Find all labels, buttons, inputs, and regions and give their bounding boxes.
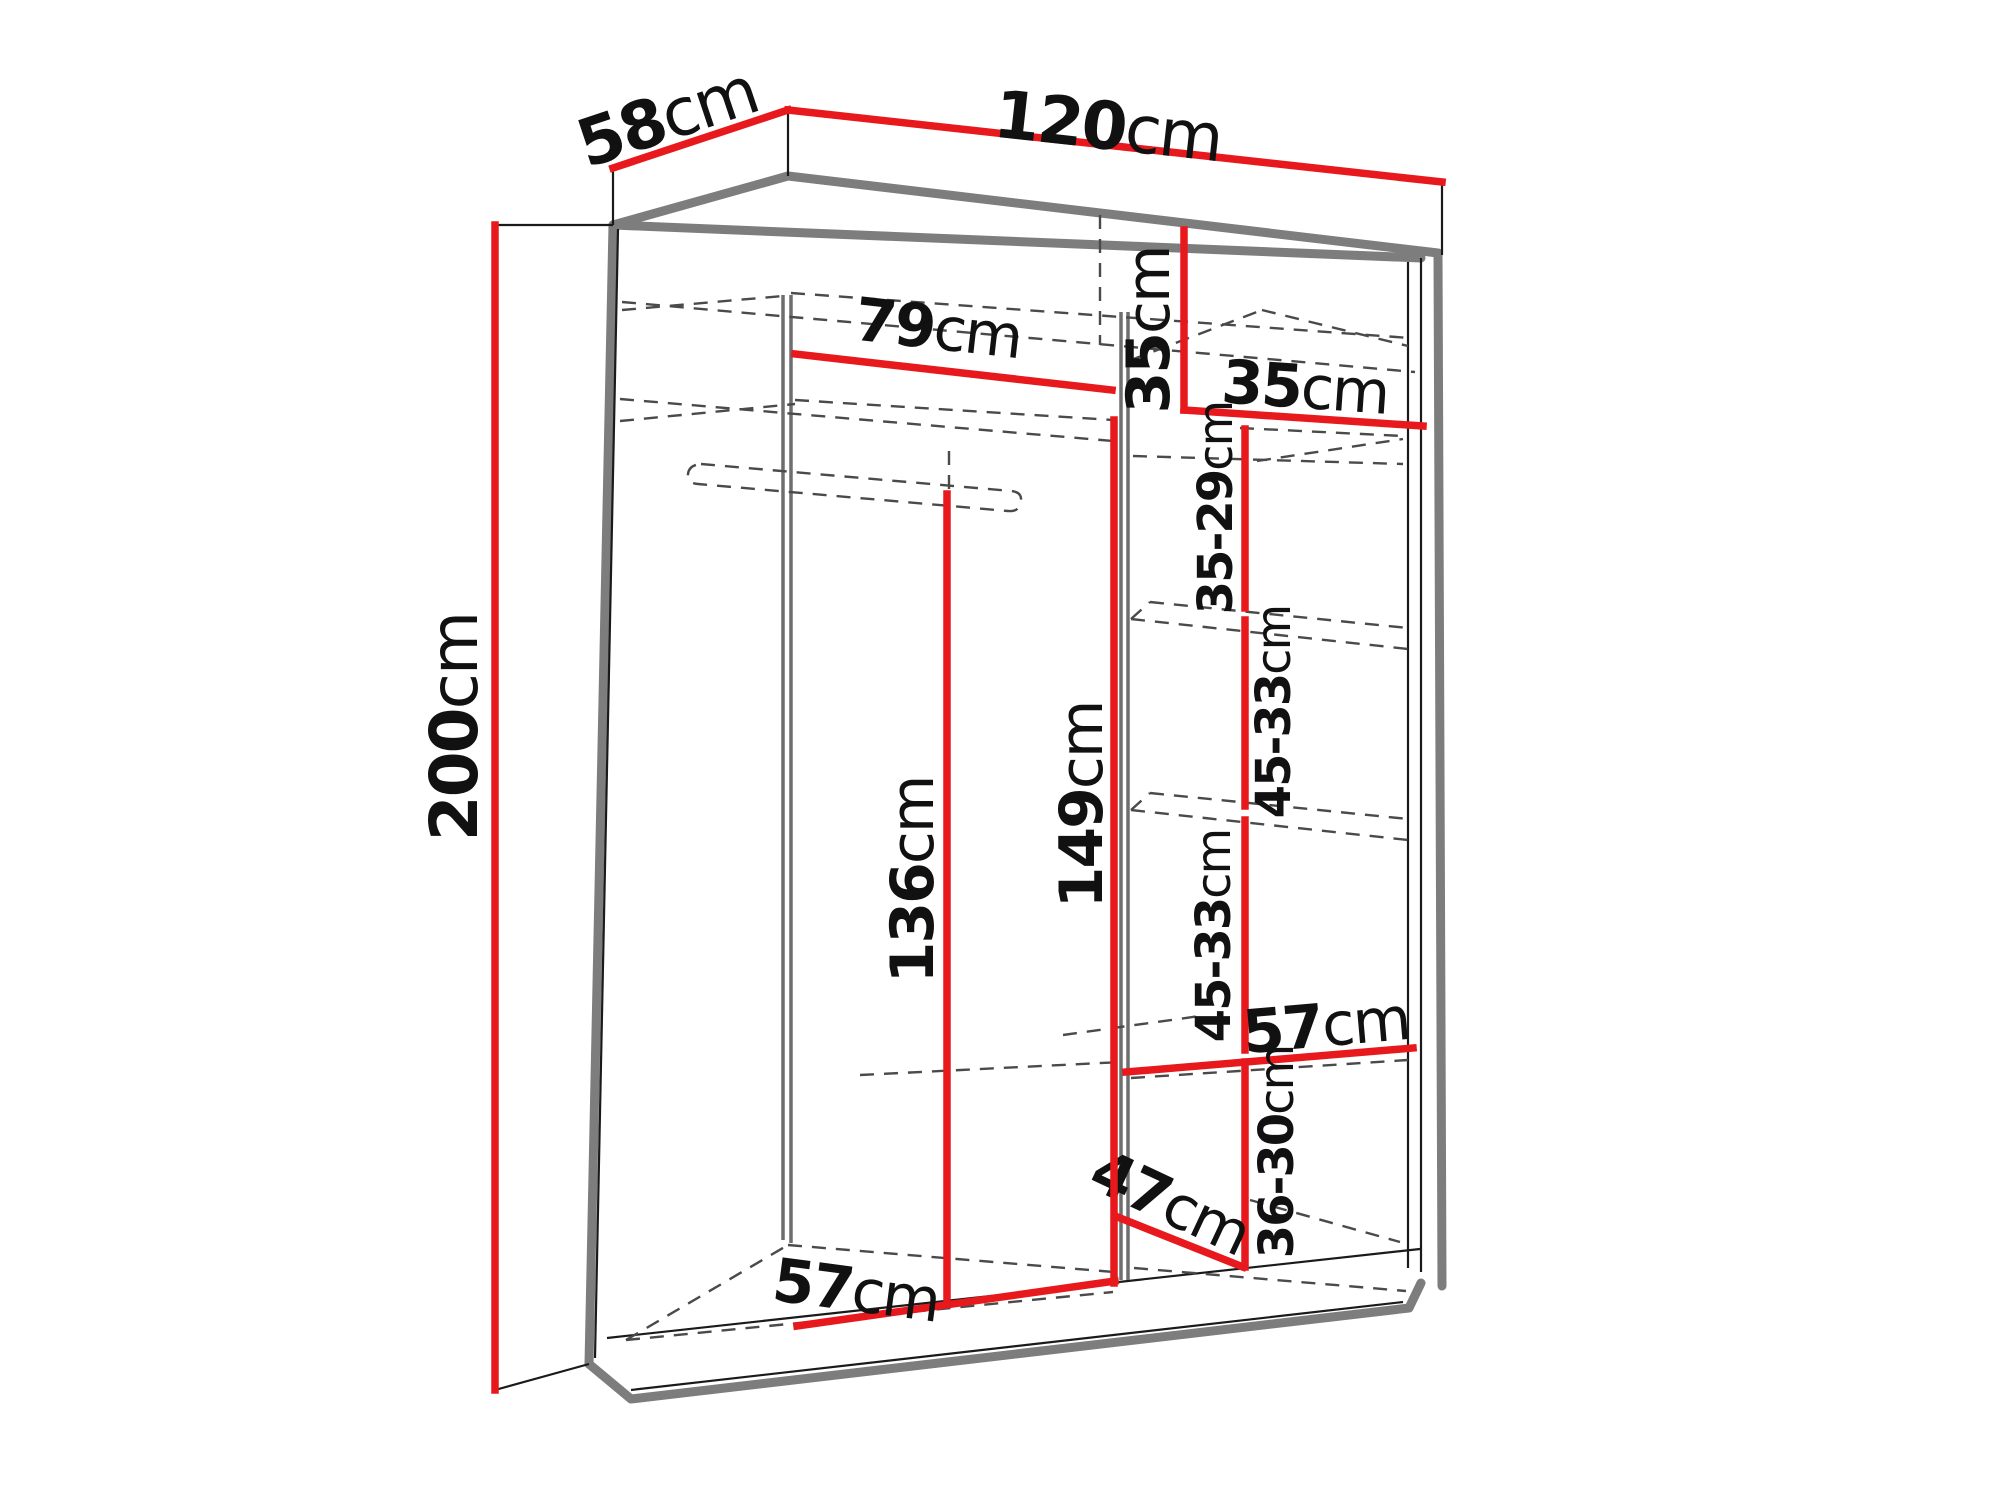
dimension-label-depth-top: 58cm — [567, 51, 766, 183]
dimension-label-top-section-height: 35cm — [1114, 247, 1184, 414]
dimension-label-shelf-gap-3: 45-33cm — [1186, 830, 1242, 1043]
connector-line-1 — [495, 1364, 589, 1390]
dimension-label-shelf-gap-4: 36-30cm — [1249, 1046, 1305, 1259]
wardrobe-dimension-diagram: 58cm120cm200cm79cm35cm35cm35-29cm45-33cm… — [0, 0, 2000, 1500]
dimension-label-bottom-depth: 47cm — [1080, 1136, 1261, 1270]
dimension-label-top-shelf-width: 35cm — [1219, 347, 1390, 428]
dimension-label-hanging-height: 136cm — [878, 777, 948, 984]
dimension-label-open-height: 149cm — [1047, 702, 1117, 909]
dimension-label-width-top: 120cm — [990, 75, 1225, 177]
dimension-label-shelf-gap-1: 35-29cm — [1188, 402, 1244, 615]
top-front-edge — [613, 225, 1421, 258]
left-front-edge — [589, 225, 613, 1364]
diagram-canvas: 58cm120cm200cm79cm35cm35cm35-29cm45-33cm… — [0, 0, 2000, 1500]
plinth-top-edge — [631, 1302, 1403, 1390]
dimension-label-shelf-gap-2: 45-33cm — [1246, 606, 1302, 819]
dimension-label-height-left: 200cm — [416, 613, 493, 841]
right-outer-edge — [1438, 253, 1442, 1286]
hanging-section-shelf — [620, 399, 1113, 441]
clothes-rail — [688, 451, 1021, 511]
